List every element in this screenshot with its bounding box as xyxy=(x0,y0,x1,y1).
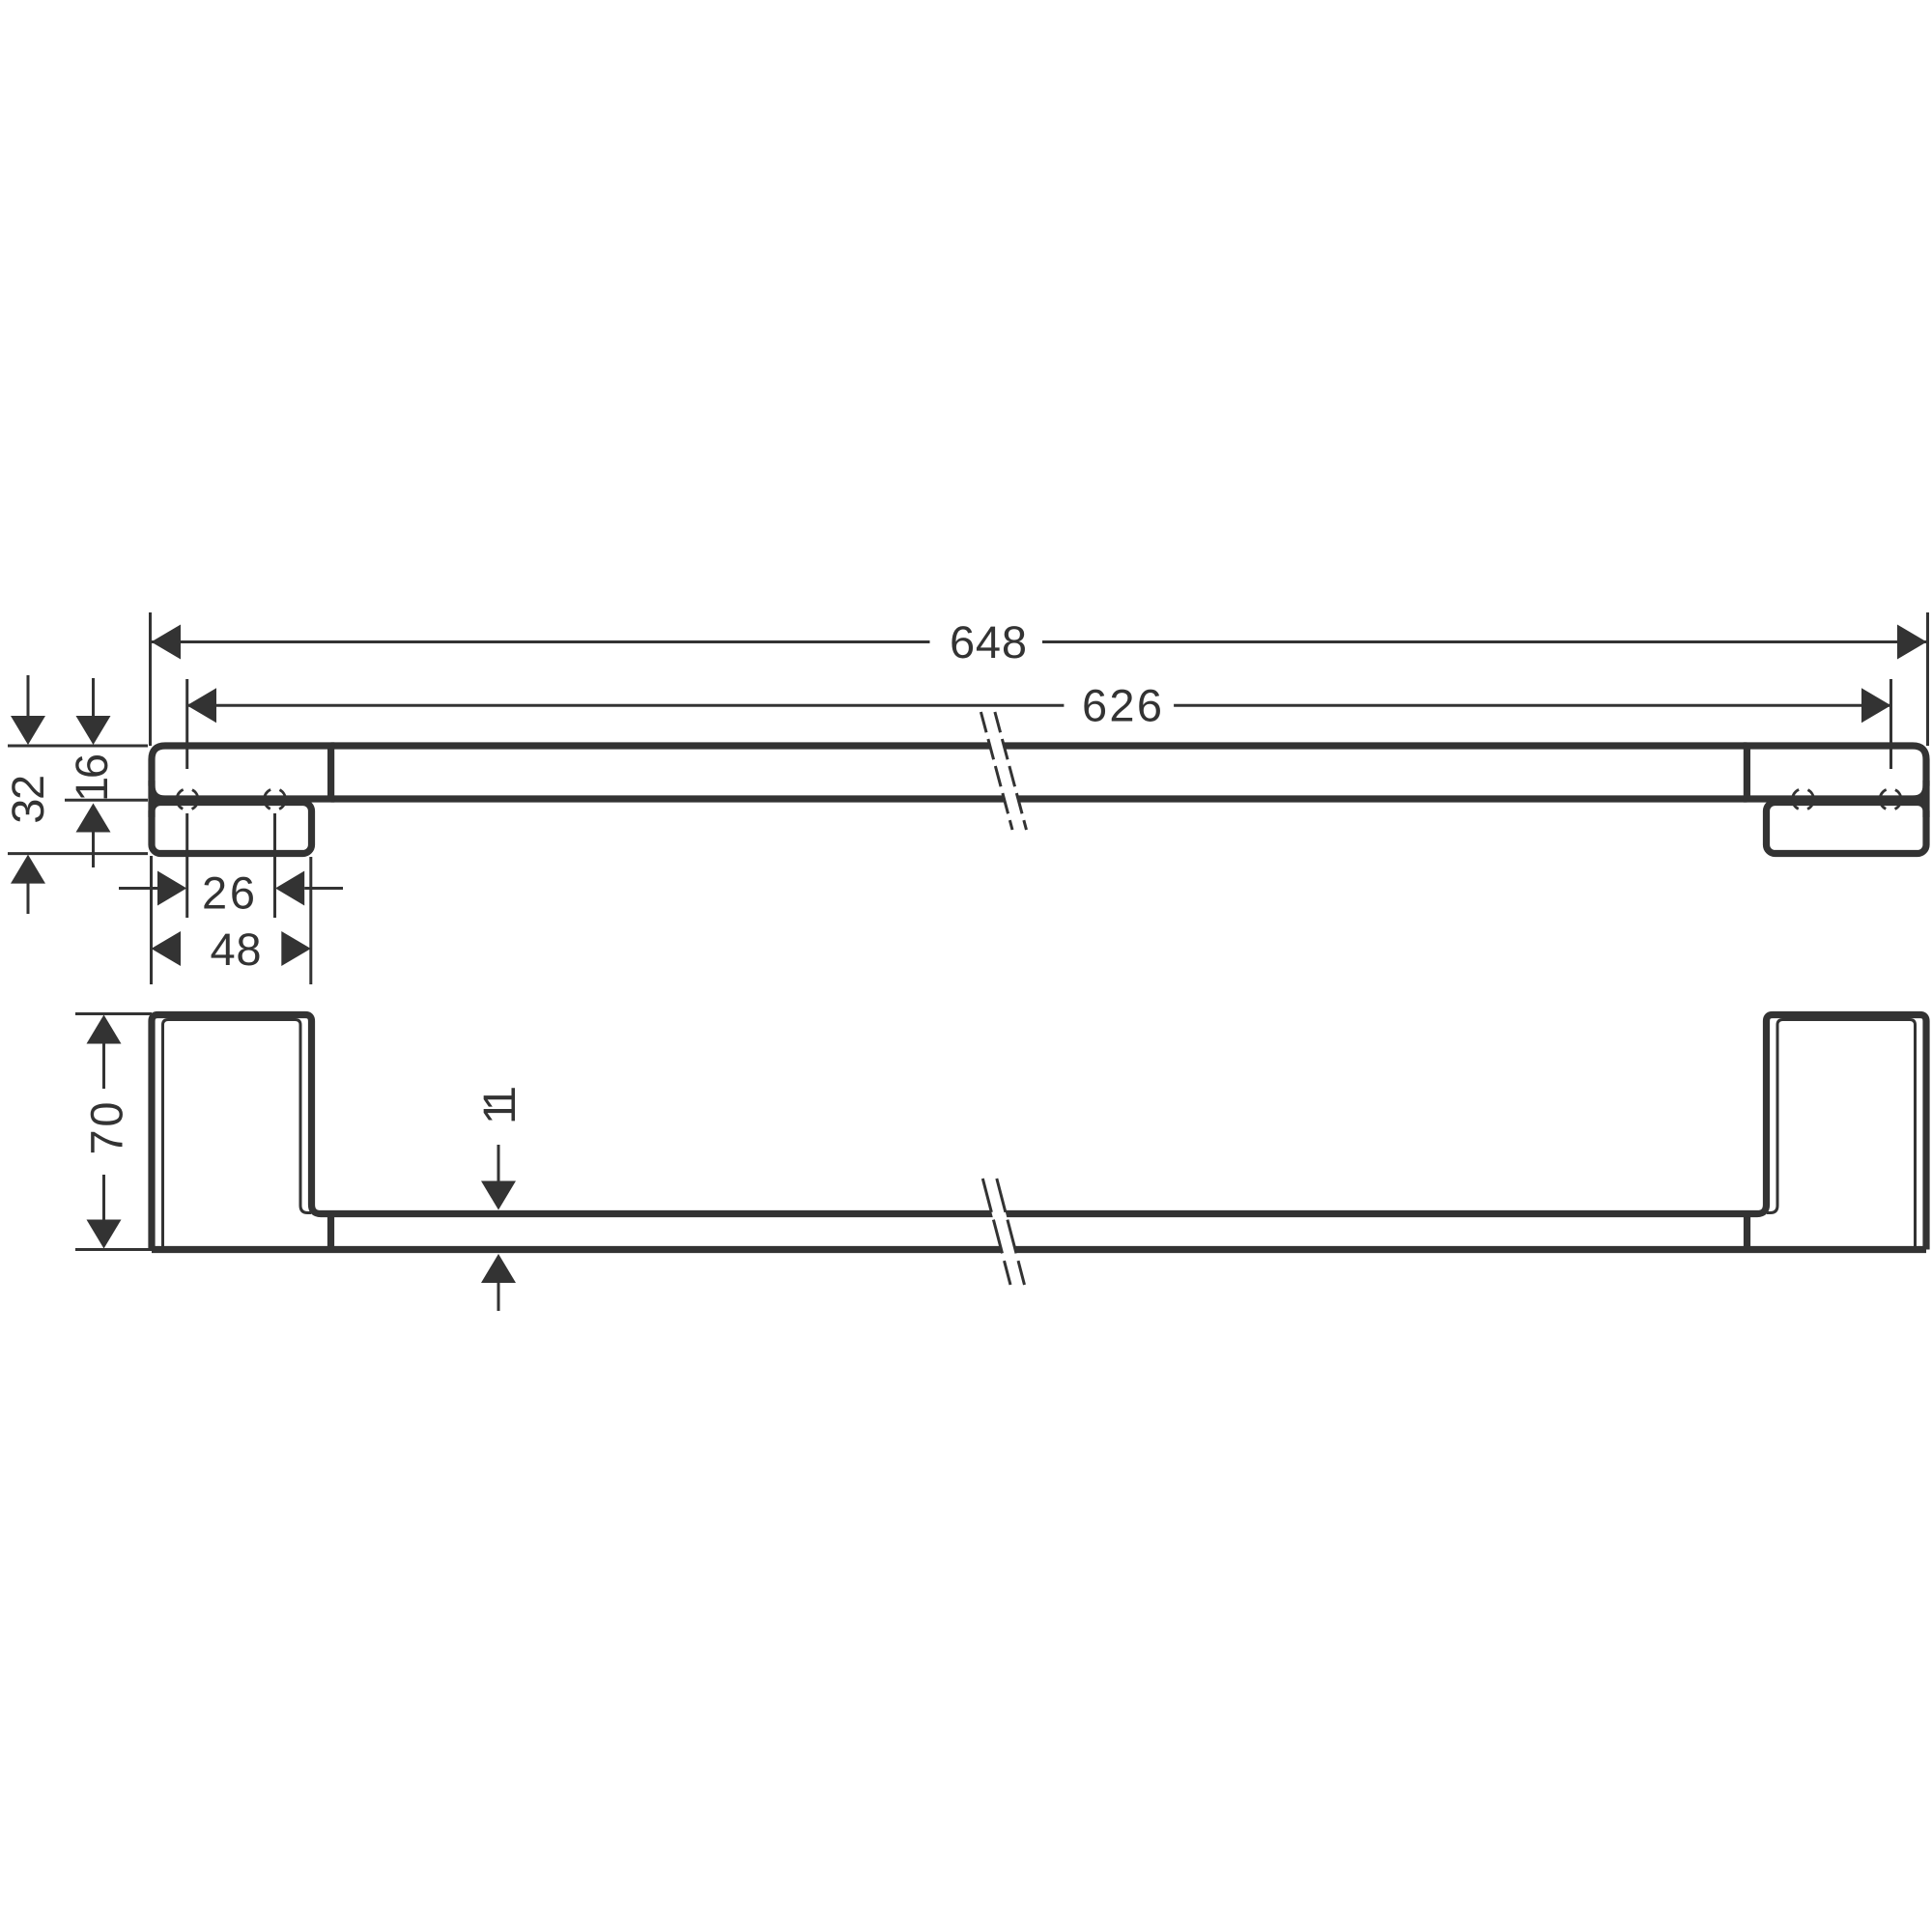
svg-text:648: 648 xyxy=(950,616,1027,668)
svg-text:32: 32 xyxy=(2,775,53,824)
svg-text:11: 11 xyxy=(473,1086,525,1124)
svg-text:626: 626 xyxy=(1082,680,1162,731)
svg-text:48: 48 xyxy=(211,923,262,975)
svg-text:16: 16 xyxy=(66,753,117,802)
